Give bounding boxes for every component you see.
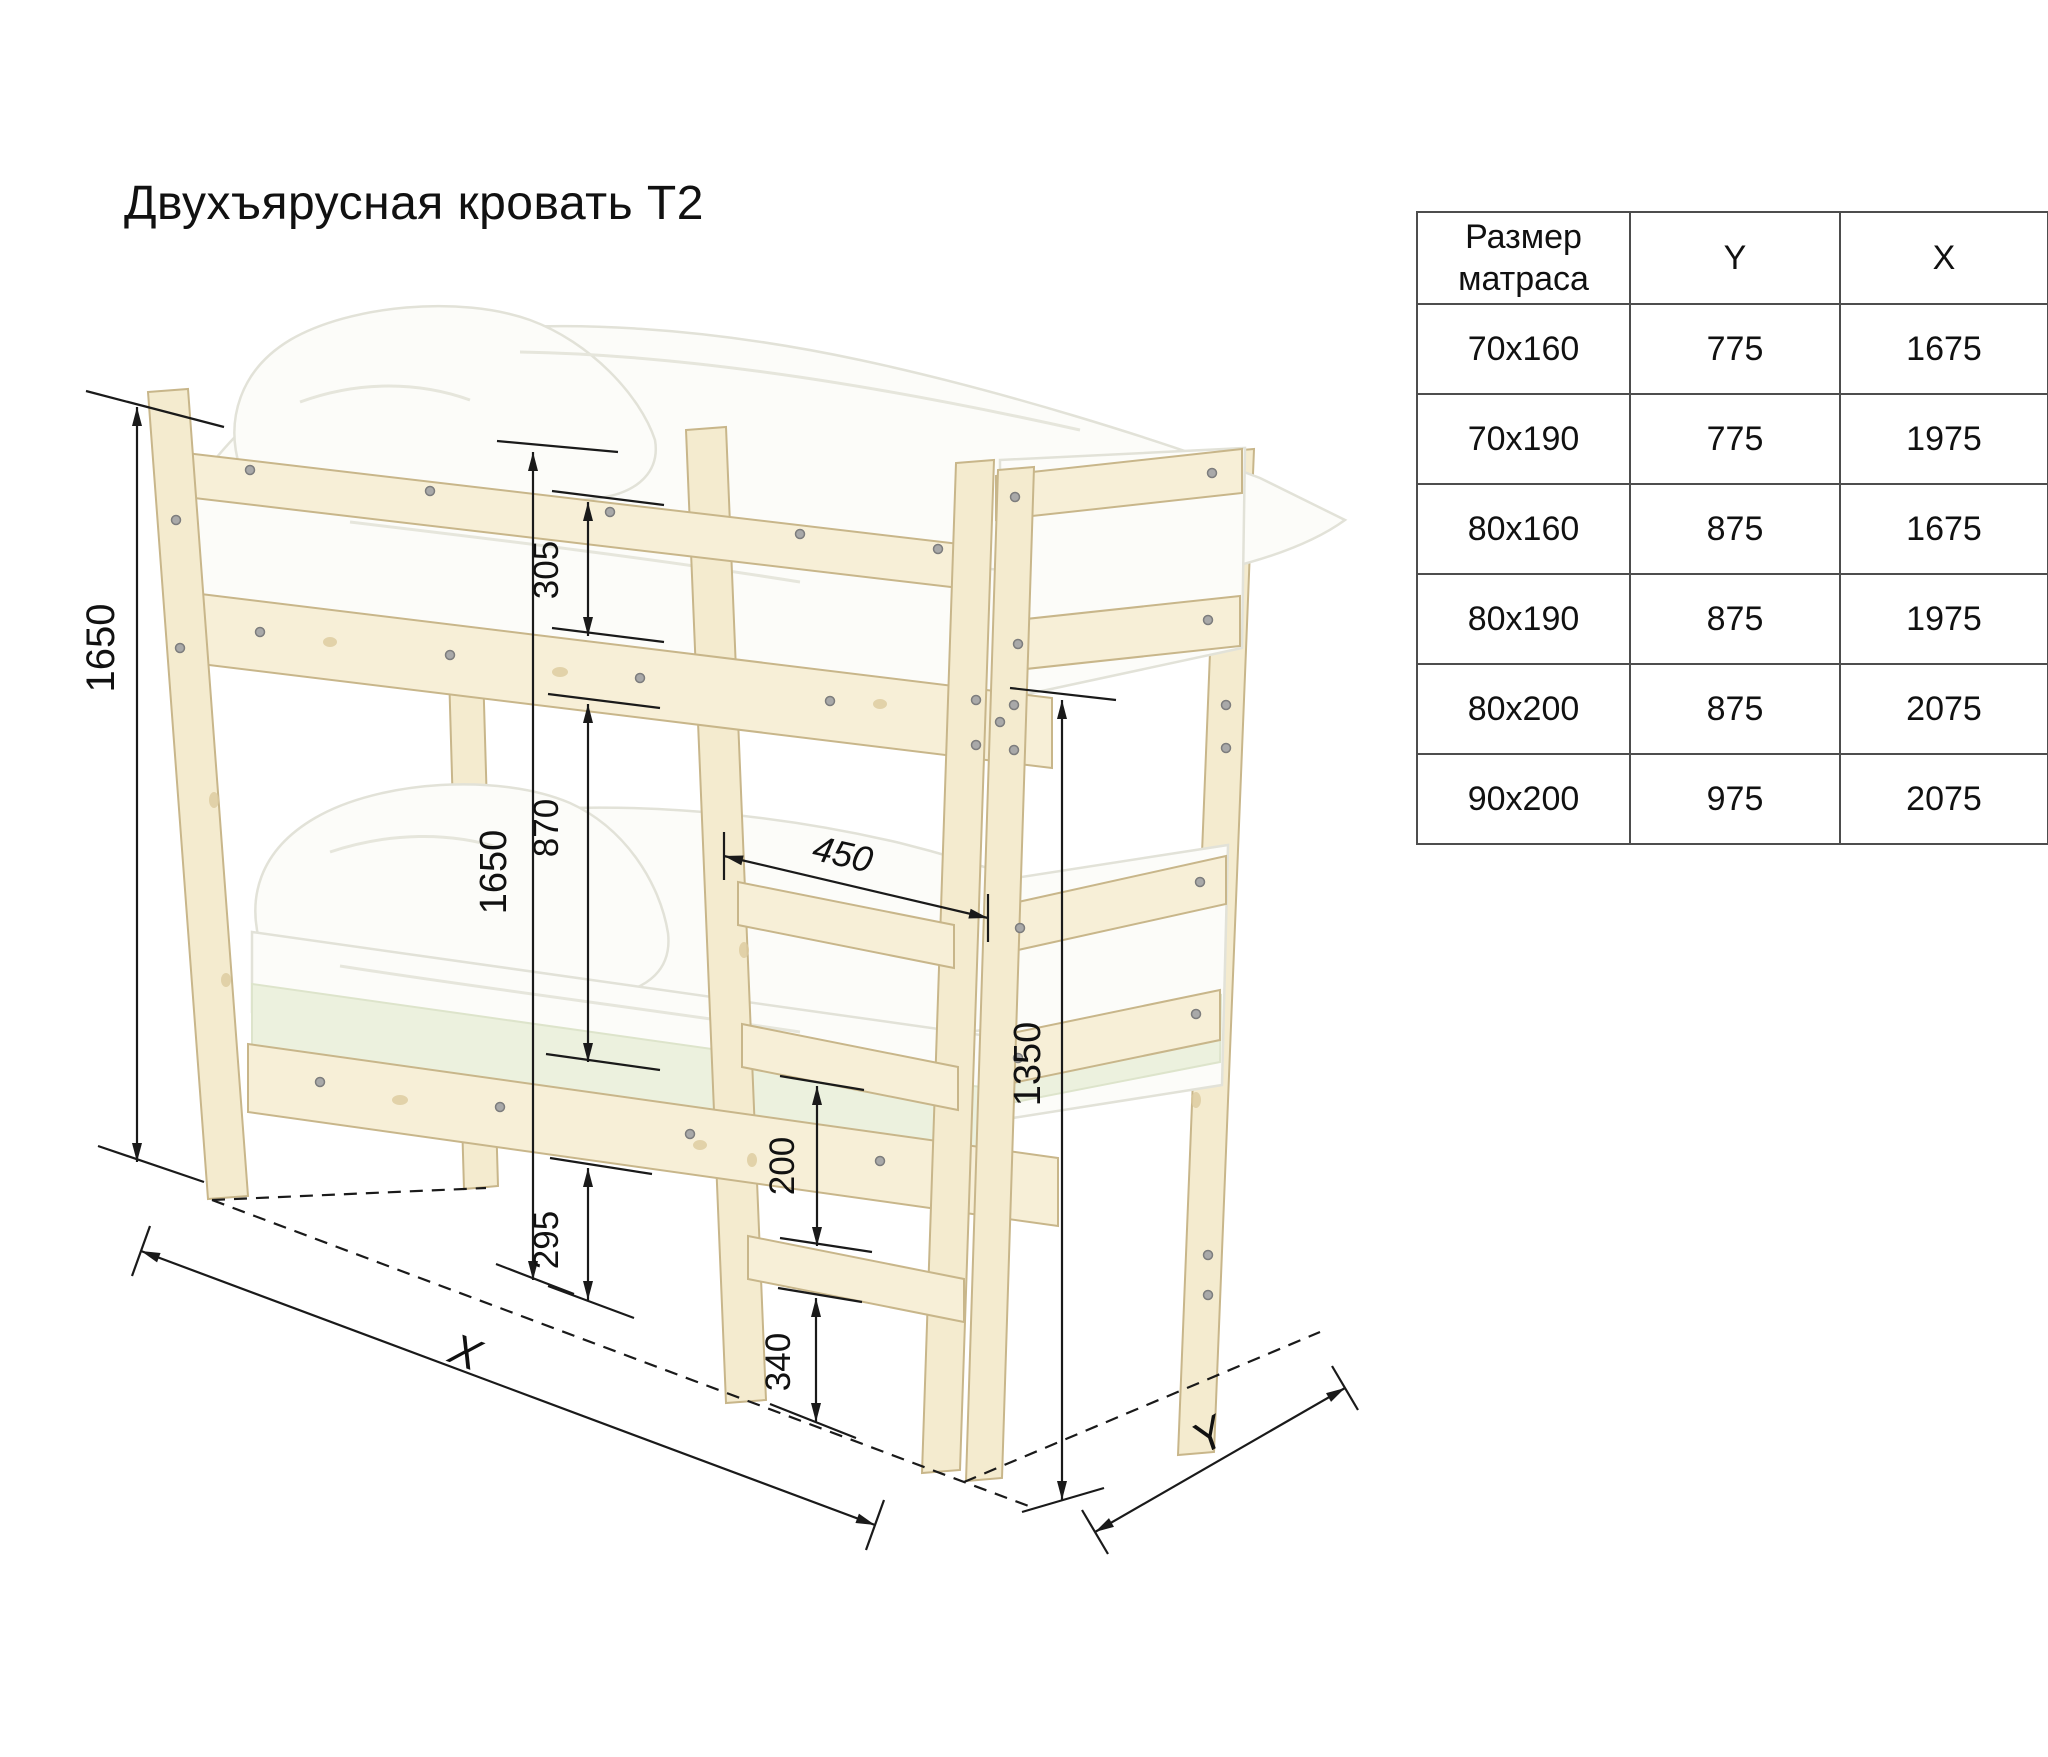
dim-length-axis: X — [442, 1324, 489, 1381]
cell-y: 875 — [1630, 484, 1840, 574]
cell-size: 90x200 — [1417, 754, 1630, 844]
page-title: Двухъярусная кровать Т2 — [124, 176, 704, 231]
cell-x: 1975 — [1840, 394, 2048, 484]
cell-y: 775 — [1630, 394, 1840, 484]
floor-line-right — [964, 1332, 1320, 1482]
dim-guard-rail-height: 305 — [527, 541, 566, 599]
cell-y: 775 — [1630, 304, 1840, 394]
dim-rung-spacing: 200 — [763, 1137, 802, 1195]
dim-rail-to-floor: 295 — [527, 1211, 566, 1269]
cell-size: 80x200 — [1417, 664, 1630, 754]
dim-upper-bunk-clearance: 1350 — [1007, 1022, 1049, 1107]
dim-bunk-gap: 870 — [527, 799, 566, 857]
cell-x: 2075 — [1840, 754, 2048, 844]
cell-size: 70x160 — [1417, 304, 1630, 394]
cell-y: 875 — [1630, 574, 1840, 664]
cell-x: 1975 — [1840, 574, 2048, 664]
cell-x: 2075 — [1840, 664, 2048, 754]
table-row: 70x190 775 1975 — [1417, 394, 2048, 484]
table-row: 80x190 875 1975 — [1417, 574, 2048, 664]
floor-line-front — [212, 1200, 1034, 1508]
page-root: { "title": "Двухъярусная кровать Т2", "t… — [0, 0, 2048, 1757]
table-header-row: Размер матраса Y X — [1417, 212, 2048, 304]
cell-y: 975 — [1630, 754, 1840, 844]
dim-inner-height: 1650 — [473, 830, 515, 915]
cell-y: 875 — [1630, 664, 1840, 754]
table-row: 90x200 975 2075 — [1417, 754, 2048, 844]
table-row: 70x160 775 1675 — [1417, 304, 2048, 394]
header-mattress-size: Размер матраса — [1417, 212, 1630, 304]
dim-overall-height: 1650 — [79, 604, 123, 693]
cell-x: 1675 — [1840, 304, 2048, 394]
table-row: 80x160 875 1675 — [1417, 484, 2048, 574]
floor-line-head — [212, 1188, 486, 1200]
mattress-size-table: Размер матраса Y X 70x160 775 1675 70x19… — [1416, 211, 2048, 845]
table-row: 80x200 875 2075 — [1417, 664, 2048, 754]
cell-size: 70x190 — [1417, 394, 1630, 484]
cell-size: 80x160 — [1417, 484, 1630, 574]
cell-size: 80x190 — [1417, 574, 1630, 664]
bed-illustration — [148, 306, 1345, 1481]
dim-bottom-rung-height: 340 — [759, 1333, 798, 1391]
header-y: Y — [1630, 212, 1840, 304]
header-x: X — [1840, 212, 2048, 304]
cell-x: 1675 — [1840, 484, 2048, 574]
